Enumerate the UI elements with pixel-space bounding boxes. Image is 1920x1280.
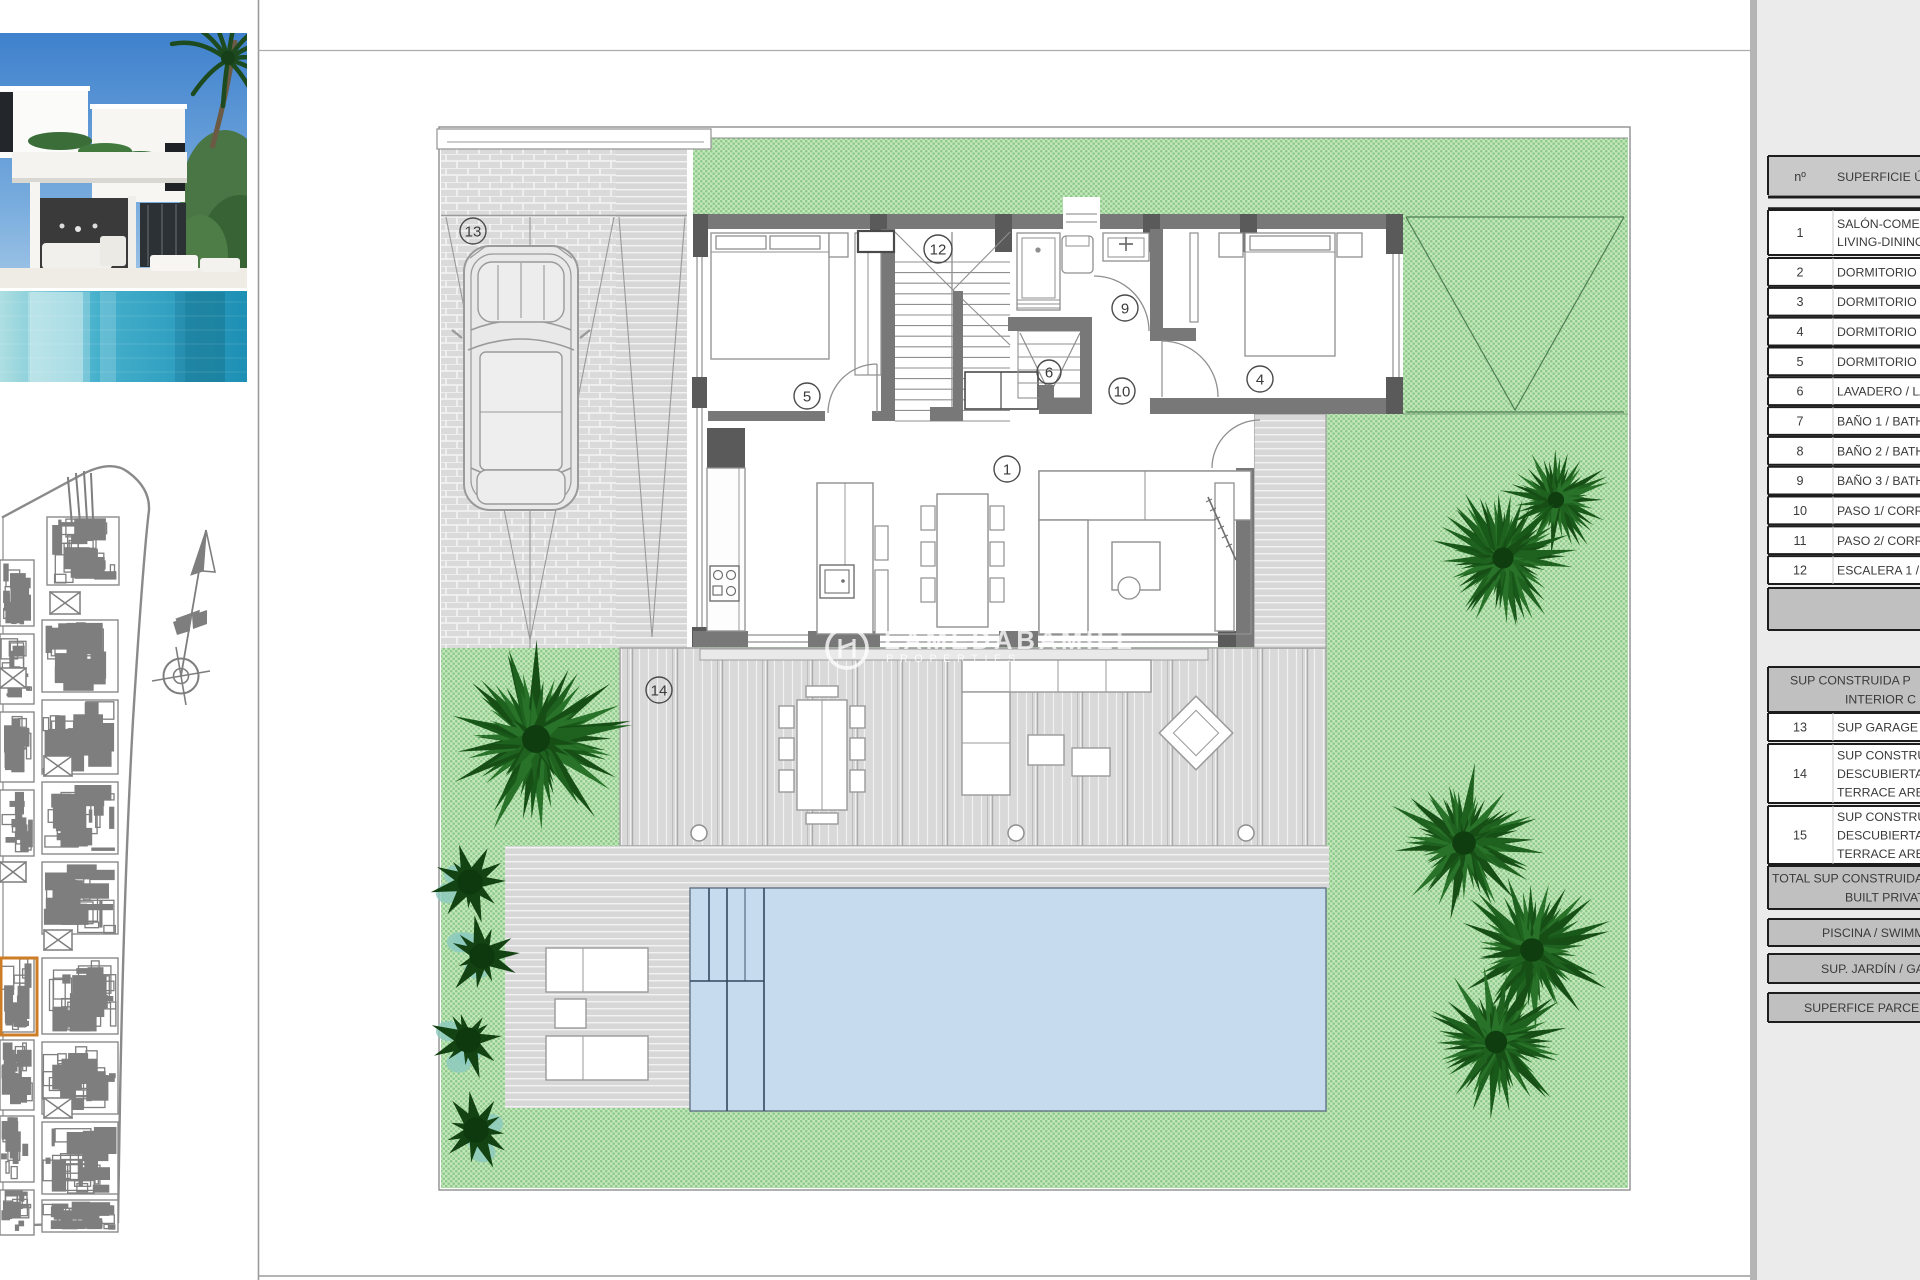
svg-text:SUPERFICIE ÚTIL / USE: SUPERFICIE ÚTIL / USE — [1837, 169, 1920, 184]
svg-text:SALÓN-COMEDOR-C: SALÓN-COMEDOR-C — [1837, 216, 1920, 231]
svg-text:5: 5 — [803, 388, 811, 405]
svg-text:PROPERTIES: PROPERTIES — [886, 653, 1022, 665]
svg-text:TERRACE AREA 2: TERRACE AREA 2 — [1837, 847, 1920, 861]
svg-text:SUP CONSTRUIDA T: SUP CONSTRUIDA T — [1837, 749, 1920, 763]
svg-text:DORMITORIO 5 / BED: DORMITORIO 5 / BED — [1837, 355, 1920, 369]
svg-text:12: 12 — [930, 241, 947, 258]
svg-text:DORMITORIO 2 / BED: DORMITORIO 2 / BED — [1837, 265, 1920, 279]
svg-text:TERRACE AREA 1: TERRACE AREA 1 — [1837, 786, 1920, 800]
svg-text:LIVING-DINING ROOM: LIVING-DINING ROOM — [1837, 235, 1920, 249]
svg-text:6: 6 — [1796, 385, 1803, 399]
svg-text:7: 7 — [1796, 415, 1803, 429]
svg-text:SUP GARAGE / GARA: SUP GARAGE / GARA — [1837, 721, 1920, 735]
svg-text:BAÑO 2 / BATHROOM: BAÑO 2 / BATHROOM — [1837, 444, 1920, 458]
svg-text:SUPERFICE PARCELA: SUPERFICE PARCELA — [1804, 1001, 1920, 1015]
svg-text:14: 14 — [651, 682, 668, 699]
svg-text:14: 14 — [1793, 767, 1807, 781]
svg-text:DORMITORIO 3 / BED: DORMITORIO 3 / BED — [1837, 295, 1920, 309]
svg-text:DESCUBIERTA / UNC: DESCUBIERTA / UNC — [1837, 829, 1920, 843]
svg-text:DORMITORIO 4 / BED: DORMITORIO 4 / BED — [1837, 325, 1920, 339]
svg-text:SUP. JARDÍN / GARD: SUP. JARDÍN / GARD — [1821, 961, 1920, 976]
svg-text:8: 8 — [1796, 444, 1803, 458]
svg-text:11: 11 — [1793, 534, 1806, 548]
svg-text:INTERIOR C: INTERIOR C — [1845, 693, 1916, 707]
svg-text:15: 15 — [1793, 829, 1807, 843]
svg-text:4: 4 — [1796, 325, 1803, 339]
svg-text:PASO 2/ CORRIDOR 2: PASO 2/ CORRIDOR 2 — [1837, 534, 1920, 548]
svg-text:4: 4 — [1256, 371, 1264, 388]
svg-text:BAÑO 1 / BATHROOM: BAÑO 1 / BATHROOM — [1837, 415, 1920, 429]
svg-text:5: 5 — [1796, 355, 1803, 369]
svg-text:LAMEDABAMILL: LAMEDABAMILL — [884, 625, 1135, 655]
svg-text:ESCALERA 1 / STAIRS: ESCALERA 1 / STAIRS — [1837, 564, 1920, 578]
svg-text:9: 9 — [1121, 300, 1129, 317]
svg-text:10: 10 — [1793, 504, 1807, 518]
svg-text:3: 3 — [1796, 295, 1803, 309]
svg-text:DESCUBIERTA / UNC: DESCUBIERTA / UNC — [1837, 767, 1920, 781]
svg-text:12: 12 — [1793, 564, 1807, 578]
svg-text:9: 9 — [1796, 474, 1803, 488]
svg-text:TOTAL SUP CONSTRUIDA: TOTAL SUP CONSTRUIDA — [1772, 872, 1920, 886]
svg-text:PASO 1/ CORRIDOR 1: PASO 1/ CORRIDOR 1 — [1837, 504, 1920, 518]
svg-text:LAVADERO / LAUNDR: LAVADERO / LAUNDR — [1837, 385, 1920, 399]
svg-text:SUP CONSTRUIDA T: SUP CONSTRUIDA T — [1837, 810, 1920, 824]
svg-text:SUP CONSTRUIDA P: SUP CONSTRUIDA P — [1790, 674, 1911, 688]
svg-text:13: 13 — [465, 223, 482, 240]
svg-text:2: 2 — [1796, 265, 1803, 279]
svg-text:1: 1 — [1003, 461, 1011, 478]
svg-text:13: 13 — [1793, 721, 1807, 735]
svg-text:BAÑO 3 / BATHROOM: BAÑO 3 / BATHROOM — [1837, 474, 1920, 488]
svg-text:6: 6 — [1045, 364, 1053, 381]
svg-text:10: 10 — [1114, 383, 1131, 400]
svg-text:nº: nº — [1794, 170, 1806, 184]
svg-text:BUILT PRIVATE AREA: BUILT PRIVATE AREA — [1845, 891, 1920, 905]
svg-text:PISCINA / SWIMMING: PISCINA / SWIMMING — [1822, 926, 1920, 940]
svg-text:1: 1 — [1796, 226, 1803, 240]
